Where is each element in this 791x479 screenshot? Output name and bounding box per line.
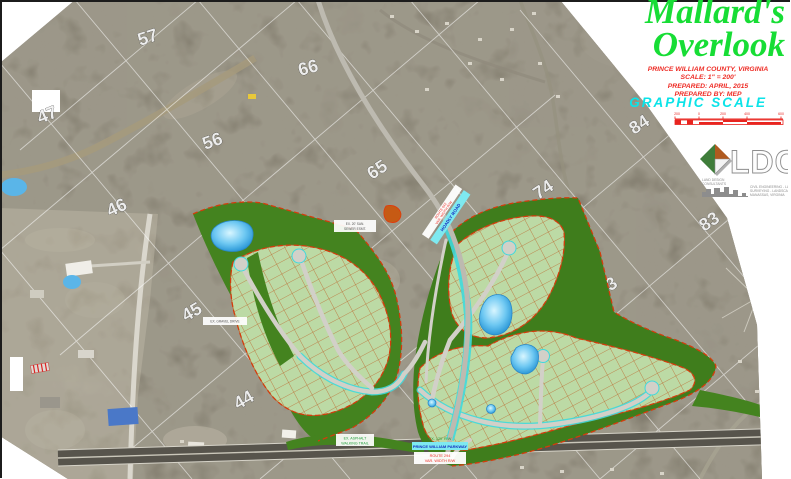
- logo-tagline-right3: MANASSAS, VIRGINIA: [750, 193, 785, 197]
- logo-tagline-left2: CONSULTANTS: [702, 182, 727, 186]
- logo-initials: LDC: [730, 144, 788, 180]
- highway-name-label: PRINCE WILLIAM PARKWAY: [413, 444, 468, 449]
- photo-gap: [10, 357, 23, 391]
- logo-diamond-orange: [715, 144, 730, 159]
- blue-roof-building: [107, 407, 138, 426]
- svg-text:EX. 20' SAN.: EX. 20' SAN.: [346, 222, 365, 226]
- svg-text:EX. 120' R/W: EX. 120' R/W: [429, 437, 452, 441]
- site-label: EX. GRAVEL DRIVE: [203, 317, 247, 325]
- site-label: EX. 20' SAN. SEWER ESMT.: [334, 220, 376, 232]
- svg-text:SEWER ESMT.: SEWER ESMT.: [344, 227, 366, 231]
- graphic-scale-title: GRAPHIC SCALE: [629, 95, 767, 110]
- scale-tick: 200: [720, 112, 726, 116]
- project-title: Mallard's Overlook: [645, 0, 785, 61]
- info-county: PRINCE WILLIAM COUNTY, VIRGINIA: [633, 66, 783, 74]
- scale-tick: 400: [744, 112, 750, 116]
- existing-pond-west2: [63, 275, 81, 289]
- project-title-line2: Overlook: [645, 29, 785, 62]
- logo-diamond-green: [700, 144, 715, 174]
- scale-tick: 200: [674, 112, 680, 116]
- svg-text:WALKING TRAIL: WALKING TRAIL: [341, 442, 369, 446]
- existing-pond-west: [1, 178, 27, 196]
- svg-text:ROUTE 294: ROUTE 294: [430, 454, 451, 458]
- plan-sheet: 57 47 66 56 65 74 84 83 73 46 45 44: [0, 0, 791, 479]
- graphic-scale-bar: 200 0 200 400 600: [672, 111, 786, 129]
- info-prepared-date: PREPARED: APRIL, 2015: [633, 83, 783, 91]
- trail-label: EX. ASPHALT WALKING TRAIL: [336, 434, 374, 446]
- info-scale: SCALE: 1" = 200': [633, 74, 783, 82]
- scale-tick: 600: [778, 112, 784, 116]
- scale-tick: 0: [698, 112, 700, 116]
- skyline-silhouette: [702, 187, 748, 197]
- svg-text:EX. GRAVEL DRIVE: EX. GRAVEL DRIVE: [210, 320, 239, 324]
- yellow-vehicle: [248, 94, 256, 99]
- svg-text:EX. ASPHALT: EX. ASPHALT: [344, 437, 368, 441]
- svg-text:VAR. WIDTH R/W: VAR. WIDTH R/W: [425, 459, 456, 463]
- ldc-logo: LDC LAND DESIGN CONSULTANTS CIVIL ENGINE…: [696, 136, 788, 200]
- logo-diamond-white: [715, 159, 730, 174]
